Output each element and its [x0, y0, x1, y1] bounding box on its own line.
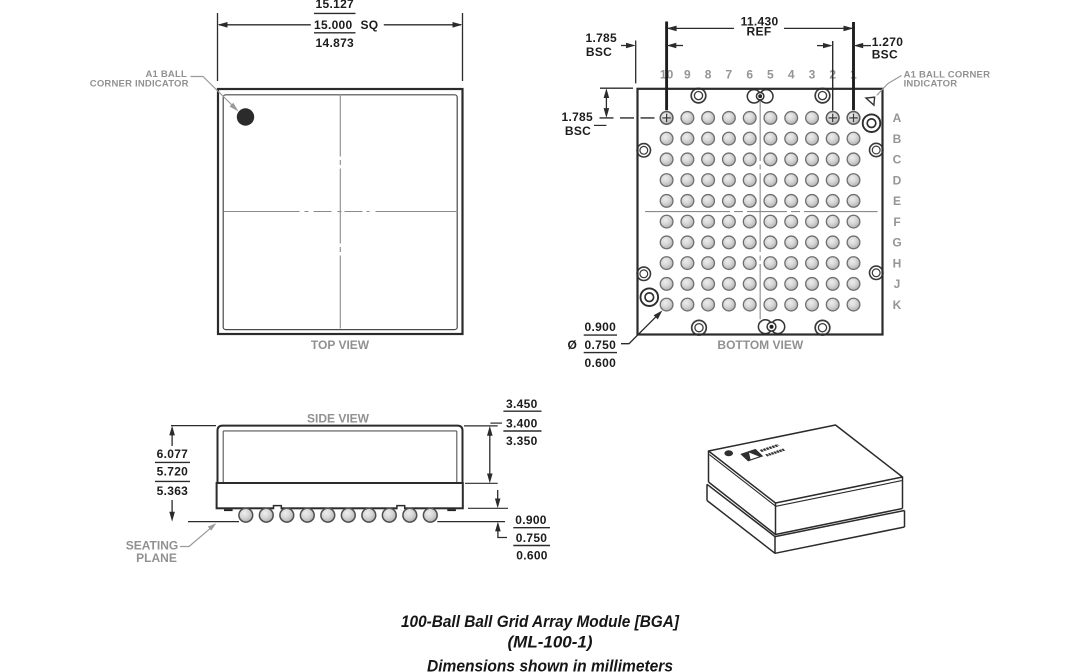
svg-text:15.000: 15.000 [314, 18, 353, 32]
svg-text:E: E [893, 194, 901, 208]
svg-text:SQ: SQ [361, 18, 379, 32]
svg-text:K: K [893, 298, 902, 312]
svg-text:0.600: 0.600 [585, 356, 617, 370]
svg-text:CORNER INDICATOR: CORNER INDICATOR [90, 78, 189, 89]
svg-text:INDICATOR: INDICATOR [904, 79, 958, 90]
svg-text:B: B [893, 132, 902, 146]
svg-text:3.450: 3.450 [506, 397, 538, 411]
svg-text:8: 8 [705, 67, 712, 81]
svg-text:6.077: 6.077 [157, 447, 189, 461]
svg-text:Dimensions shown in millimeter: Dimensions shown in millimeters [427, 657, 673, 672]
svg-text:6: 6 [746, 67, 753, 81]
svg-text:BOTTOM VIEW: BOTTOM VIEW [717, 338, 803, 352]
svg-text:F: F [893, 215, 900, 229]
svg-text:5.363: 5.363 [157, 484, 189, 498]
svg-text:0.900: 0.900 [585, 320, 617, 334]
svg-text:SIDE VIEW: SIDE VIEW [307, 412, 370, 426]
svg-text:A: A [893, 111, 902, 125]
svg-text:G: G [892, 236, 901, 250]
svg-text:0.750: 0.750 [585, 338, 617, 352]
svg-text:Ø: Ø [568, 338, 578, 352]
svg-text:7: 7 [726, 67, 733, 81]
svg-text:5.720: 5.720 [157, 465, 189, 479]
svg-text:H: H [893, 256, 902, 270]
svg-text:BSC: BSC [586, 45, 612, 59]
svg-text:1.785: 1.785 [585, 31, 617, 45]
svg-text:14.873: 14.873 [316, 36, 355, 50]
svg-text:J: J [894, 277, 901, 291]
svg-text:0.600: 0.600 [516, 548, 548, 562]
svg-text:0.750: 0.750 [516, 531, 548, 545]
svg-text:9: 9 [684, 67, 691, 81]
svg-text:D: D [893, 173, 902, 187]
svg-text:PLANE: PLANE [136, 551, 177, 565]
svg-text:BSC: BSC [872, 47, 898, 61]
svg-text:REF: REF [747, 25, 772, 39]
svg-text:5: 5 [767, 67, 774, 81]
svg-text:(ML-100-1): (ML-100-1) [508, 634, 593, 652]
svg-text:100-Ball Ball Grid Array Modul: 100-Ball Ball Grid Array Module [BGA] [401, 613, 680, 631]
svg-text:4: 4 [788, 67, 795, 81]
svg-text:1.785: 1.785 [561, 110, 593, 124]
svg-text:3: 3 [809, 67, 816, 81]
svg-text:BSC: BSC [565, 124, 591, 138]
svg-text:3.400: 3.400 [506, 417, 538, 431]
svg-text:TOP VIEW: TOP VIEW [311, 338, 370, 352]
svg-text:15.127: 15.127 [316, 0, 355, 11]
svg-text:C: C [893, 153, 902, 167]
svg-text:0.900: 0.900 [515, 513, 547, 527]
svg-text:3.350: 3.350 [506, 434, 538, 448]
